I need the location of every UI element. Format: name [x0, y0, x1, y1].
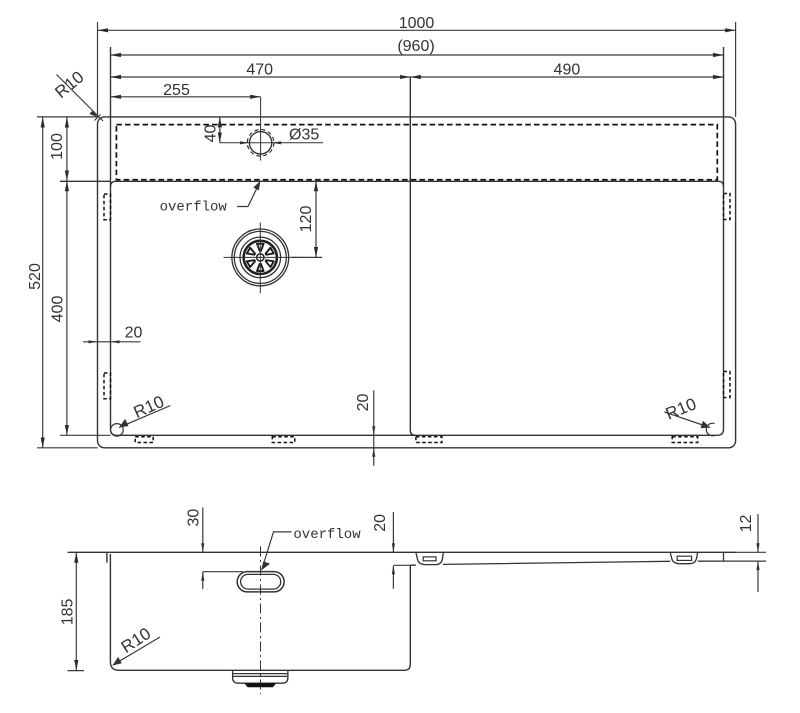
svg-text:R10: R10 — [663, 394, 699, 423]
svg-text:120: 120 — [298, 206, 315, 233]
svg-text:20: 20 — [372, 514, 389, 532]
svg-text:R10: R10 — [131, 392, 167, 422]
svg-text:(960): (960) — [397, 38, 434, 55]
svg-text:R10: R10 — [51, 67, 87, 102]
svg-text:1000: 1000 — [399, 15, 435, 32]
svg-text:30: 30 — [185, 509, 202, 527]
svg-text:20: 20 — [125, 325, 143, 342]
svg-text:overflow: overflow — [293, 527, 361, 543]
svg-text:100: 100 — [49, 133, 66, 160]
svg-text:Ø35: Ø35 — [289, 127, 319, 144]
svg-text:490: 490 — [554, 62, 581, 79]
svg-text:255: 255 — [163, 82, 190, 99]
svg-text:520: 520 — [27, 263, 44, 290]
svg-text:overflow: overflow — [160, 200, 228, 216]
svg-text:185: 185 — [60, 598, 77, 625]
svg-text:20: 20 — [355, 394, 372, 412]
svg-text:400: 400 — [50, 296, 67, 323]
svg-text:40: 40 — [203, 125, 220, 143]
svg-text:12: 12 — [738, 515, 755, 533]
svg-text:470: 470 — [246, 62, 273, 79]
